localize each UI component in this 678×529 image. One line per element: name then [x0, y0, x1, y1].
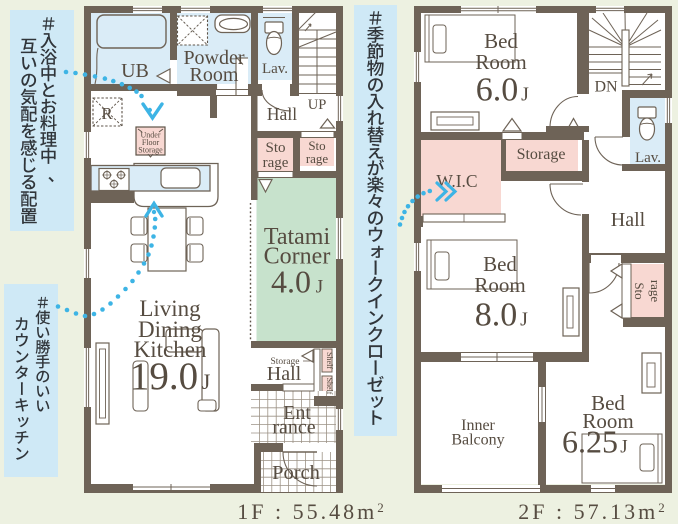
- svg-text:1F : 55.48m2: 1F : 55.48m2: [237, 499, 386, 524]
- svg-text:2F : 57.13m2: 2F : 57.13m2: [518, 499, 667, 524]
- svg-text:UP: UP: [308, 97, 327, 113]
- svg-text:J: J: [620, 437, 627, 458]
- svg-text:19.0: 19.0: [130, 355, 198, 398]
- svg-text:R: R: [101, 104, 113, 123]
- svg-text:DN: DN: [594, 79, 618, 96]
- svg-text:Room: Room: [190, 64, 239, 86]
- svg-text:Lav.: Lav.: [262, 61, 288, 77]
- svg-text:Shelf: Shelf: [325, 378, 334, 395]
- svg-text:Lav.: Lav.: [635, 150, 661, 166]
- svg-text:6.0: 6.0: [476, 72, 519, 109]
- svg-text:Sto: Sto: [632, 282, 647, 299]
- svg-text:rage: rage: [306, 151, 329, 166]
- svg-text:J: J: [202, 369, 211, 394]
- svg-text:rance: rance: [272, 417, 315, 439]
- svg-text:4.0: 4.0: [271, 264, 311, 300]
- svg-text:Balcony: Balcony: [451, 432, 504, 449]
- svg-text:6.25: 6.25: [562, 424, 618, 460]
- svg-text:8.0: 8.0: [475, 297, 518, 334]
- svg-text:Storage: Storage: [138, 146, 163, 155]
- svg-text:rage: rage: [263, 155, 289, 171]
- svg-text:Hall: Hall: [267, 363, 302, 385]
- svg-text:J: J: [316, 277, 323, 298]
- svg-text:Sto: Sto: [265, 140, 285, 156]
- svg-text:J: J: [521, 84, 529, 106]
- svg-text:Storage: Storage: [517, 146, 566, 163]
- svg-text:Hall: Hall: [267, 104, 297, 124]
- svg-text:J: J: [520, 309, 528, 331]
- svg-text:Porch: Porch: [272, 462, 320, 484]
- svg-text:Room: Room: [474, 273, 525, 297]
- svg-text:rage: rage: [648, 280, 663, 303]
- svg-text:Shelf: Shelf: [325, 352, 334, 369]
- svg-text:Room: Room: [475, 50, 526, 74]
- svg-text:Hall: Hall: [611, 209, 646, 231]
- svg-text:UB: UB: [121, 60, 149, 82]
